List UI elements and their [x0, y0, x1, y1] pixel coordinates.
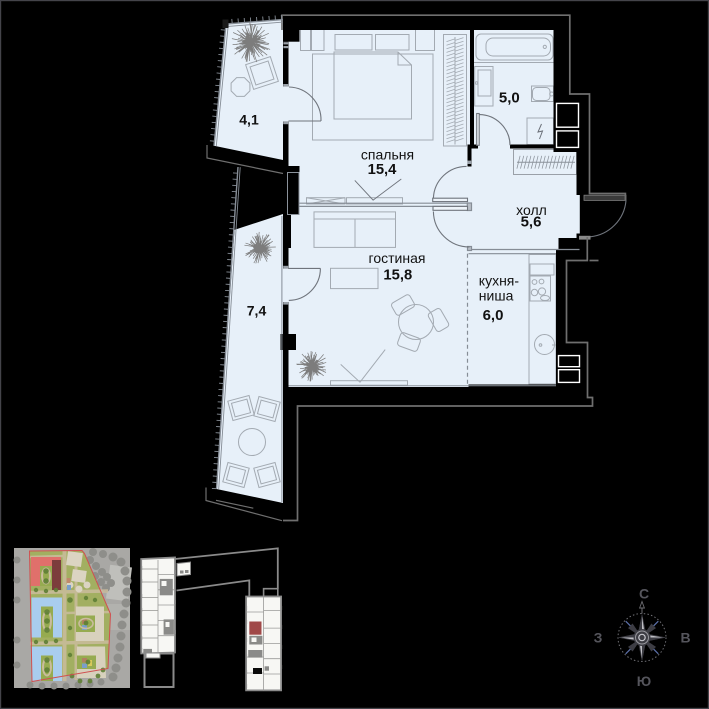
svg-text:4,1: 4,1 — [239, 112, 259, 128]
svg-text:7,4: 7,4 — [247, 303, 267, 319]
svg-text:15,8: 15,8 — [383, 268, 412, 284]
svg-text:В: В — [680, 630, 690, 646]
svg-text:ниша: ниша — [479, 288, 514, 304]
svg-text:З: З — [594, 630, 603, 646]
svg-text:гостиная: гостиная — [369, 250, 426, 266]
svg-text:5,6: 5,6 — [521, 214, 542, 231]
svg-text:5,0: 5,0 — [499, 90, 520, 107]
svg-text:Ю: Ю — [637, 673, 651, 689]
svg-text:15,4: 15,4 — [368, 162, 398, 178]
svg-text:кухня-: кухня- — [479, 272, 520, 288]
svg-text:спальня: спальня — [361, 146, 414, 162]
svg-text:6,0: 6,0 — [483, 307, 504, 324]
svg-text:С: С — [639, 586, 649, 602]
